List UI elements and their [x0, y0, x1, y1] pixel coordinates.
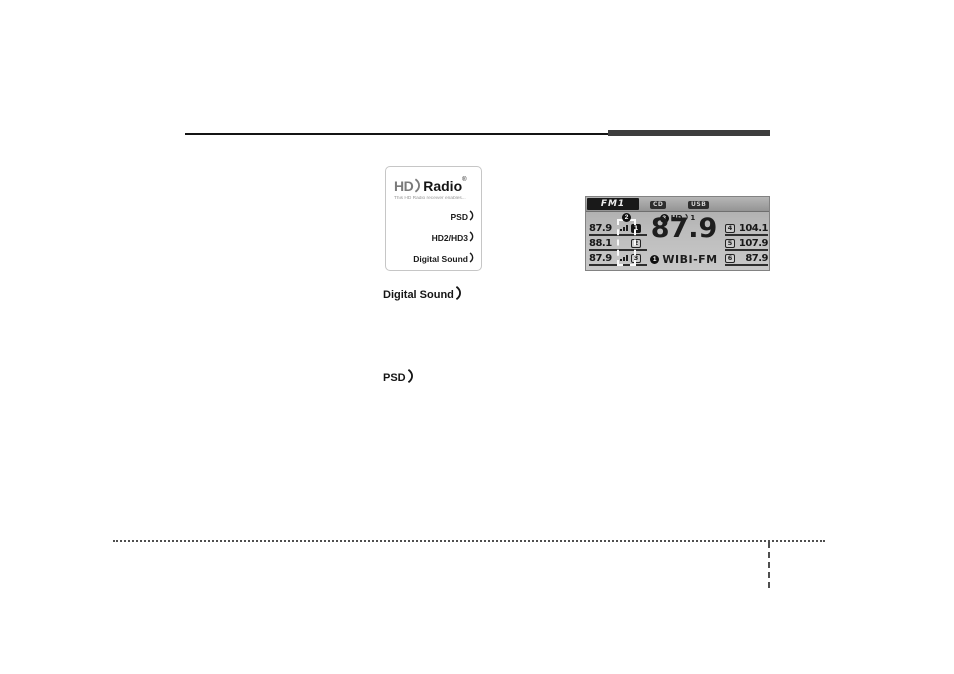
band-tab-fm1: FM1	[587, 198, 639, 210]
hd-radio-logo-box: HD Radio ® This HD Radio receiver enable…	[385, 166, 482, 271]
header-rule-thick	[608, 130, 770, 136]
arc-icon	[407, 369, 414, 386]
hd-radio-logo: HD Radio ®	[394, 178, 467, 198]
feature-digital-sound: Digital Sound	[413, 252, 474, 265]
manual-page: HD Radio ® This HD Radio receiver enable…	[0, 0, 954, 674]
preset-6-frequency: 87.9	[745, 253, 768, 264]
header-rule-thin	[185, 133, 609, 135]
feature-digital-sound-label: Digital Sound	[413, 254, 468, 264]
preset-4-number: 4	[725, 224, 735, 233]
digital-sound-badge: Digital Sound	[383, 286, 462, 303]
arc-icon	[469, 210, 474, 223]
preset-4-frequency: 104.1	[739, 223, 768, 234]
callout-2: 2	[622, 213, 631, 222]
footer-vertical-dash	[768, 542, 770, 588]
psd-badge-label: PSD	[383, 372, 406, 384]
preset-5-frequency: 107.9	[739, 238, 768, 249]
hd-logo-tagline: This HD Radio receiver enables...	[394, 196, 466, 201]
hd-logo-arc-icon	[414, 178, 421, 198]
feature-psd-label: PSD	[451, 212, 468, 222]
psd-badge: PSD	[383, 369, 414, 386]
preset-2-frequency: 88.1	[589, 238, 616, 249]
footer-dotted-rule	[113, 540, 825, 542]
station-line: 1 WIBI-FM	[640, 253, 728, 266]
hd-logo-letters: HD	[394, 178, 413, 194]
feature-hd2-hd3-label: HD2/HD3	[432, 233, 468, 243]
preset-row-4: 4 104.1	[725, 222, 768, 236]
feature-psd: PSD	[451, 210, 474, 223]
preset-6-number: 6	[725, 254, 735, 263]
cd-source-badge: CD	[650, 201, 666, 209]
arc-icon	[469, 252, 474, 265]
arc-icon	[455, 286, 462, 303]
display-top-bar: FM1 CD USB	[586, 197, 769, 212]
preset-row-5: 5 107.9	[725, 237, 768, 251]
hd-icon-highlight-rect	[617, 219, 636, 266]
radio-display-illustration: FM1 CD USB 3 HD 1 87.9 1 88.1 2 87.9 3	[585, 196, 770, 271]
current-frequency: 87.9	[644, 214, 724, 244]
preset-5-number: 5	[725, 239, 735, 248]
arc-icon	[469, 231, 474, 244]
preset-row-6: 6 87.9	[725, 252, 768, 266]
preset-1-frequency: 87.9	[589, 223, 616, 234]
registered-mark: ®	[462, 177, 466, 183]
feature-hd2-hd3: HD2/HD3	[432, 231, 474, 244]
callout-1: 1	[650, 255, 659, 264]
station-name: WIBI-FM	[662, 253, 717, 266]
digital-sound-badge-label: Digital Sound	[383, 289, 454, 301]
usb-source-badge: USB	[688, 201, 709, 209]
preset-3-frequency: 87.9	[589, 253, 616, 264]
hd-feature-list: PSD HD2/HD3 Digital Sound	[413, 210, 474, 265]
radio-wordmark: Radio	[423, 178, 462, 194]
